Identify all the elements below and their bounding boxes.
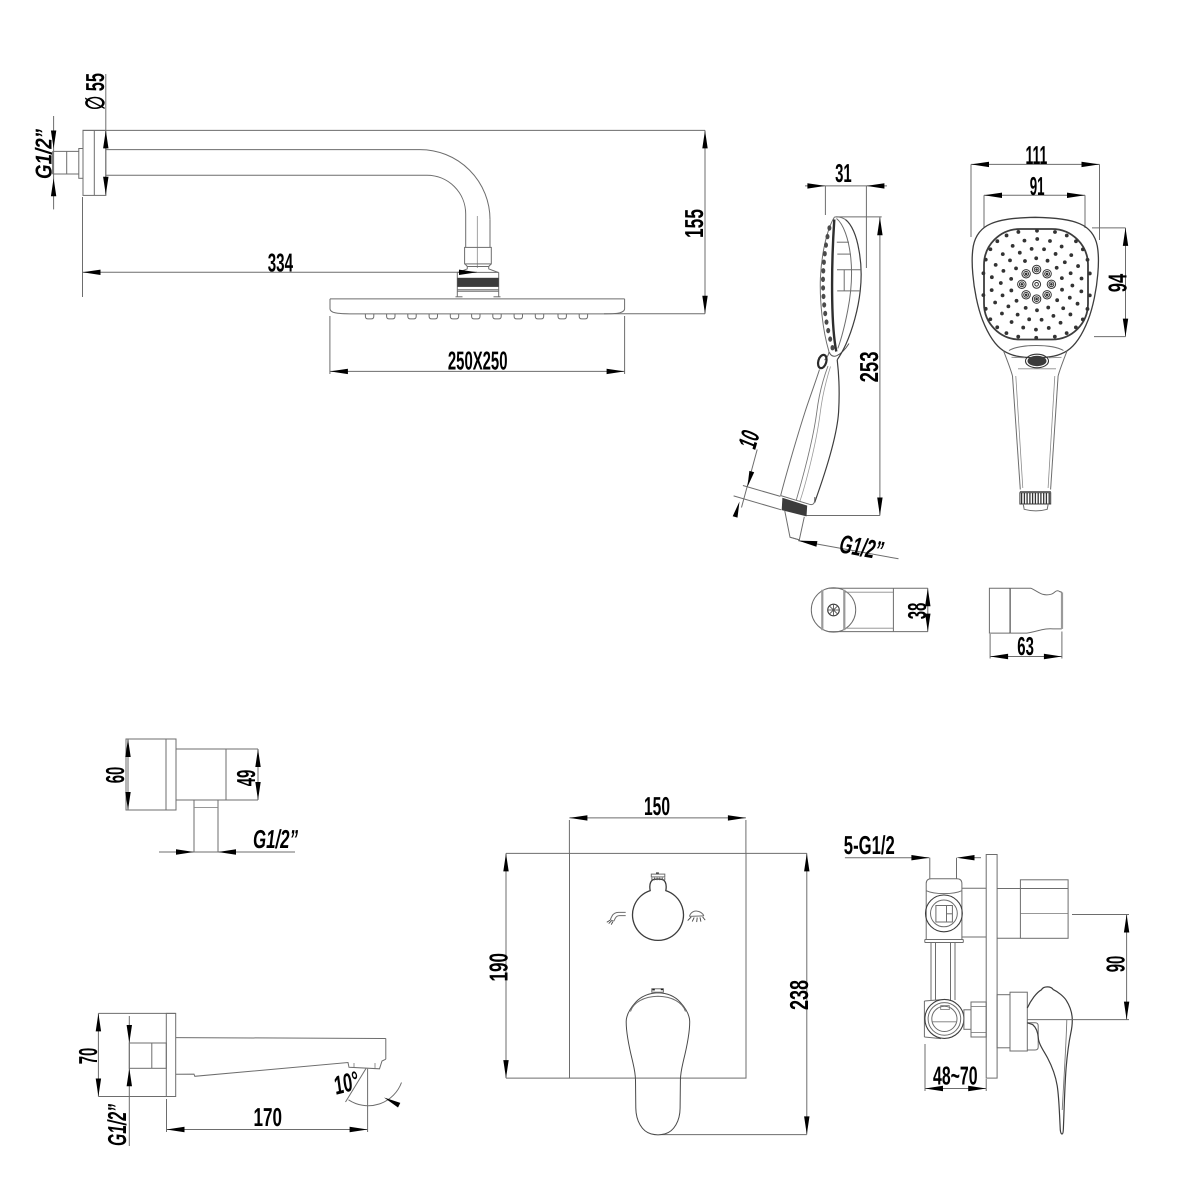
svg-text:91: 91 — [1030, 171, 1045, 201]
svg-text:60: 60 — [100, 767, 130, 784]
svg-text:G1/2”: G1/2” — [102, 1104, 132, 1146]
svg-text:334: 334 — [268, 247, 294, 277]
svg-text:190: 190 — [484, 953, 514, 982]
svg-text:G1/2”: G1/2” — [31, 129, 57, 179]
svg-text:49: 49 — [231, 770, 261, 787]
svg-text:155: 155 — [679, 209, 709, 238]
svg-text:253: 253 — [854, 351, 884, 382]
svg-text:38: 38 — [902, 603, 932, 620]
svg-text:∅ 55: ∅ 55 — [80, 73, 110, 110]
svg-text:63: 63 — [1017, 631, 1034, 661]
svg-text:111: 111 — [1026, 140, 1048, 170]
svg-text:94: 94 — [1103, 273, 1133, 292]
svg-text:90: 90 — [1101, 956, 1131, 973]
svg-text:31: 31 — [835, 158, 852, 188]
svg-text:250X250: 250X250 — [448, 345, 508, 375]
svg-text:238: 238 — [784, 980, 814, 1010]
svg-text:70: 70 — [73, 1048, 103, 1065]
svg-text:48~70: 48~70 — [933, 1060, 978, 1090]
svg-text:150: 150 — [644, 791, 670, 821]
svg-text:5-G1/2: 5-G1/2 — [844, 830, 895, 860]
svg-text:170: 170 — [254, 1102, 283, 1132]
svg-text:G1/2”: G1/2” — [253, 824, 298, 854]
